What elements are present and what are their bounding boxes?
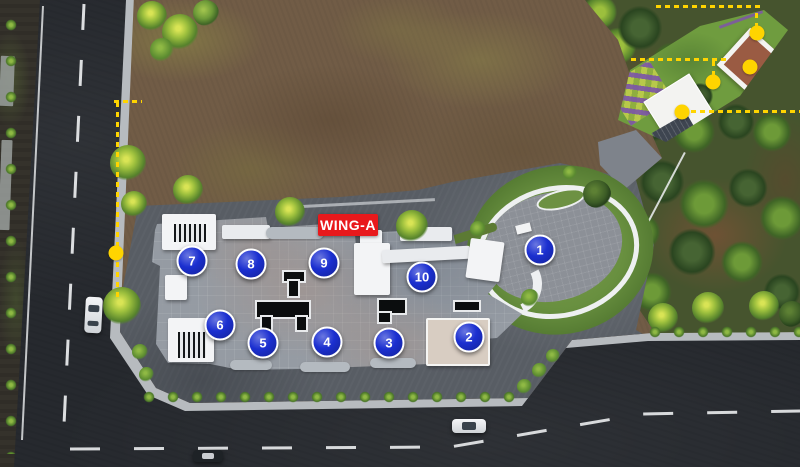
bush (150, 38, 174, 62)
car (452, 419, 486, 433)
plan-marker-2[interactable]: 2 (454, 322, 485, 353)
palm-tree (275, 197, 305, 227)
amenity-dot[interactable] (706, 75, 721, 90)
boundary-line (712, 58, 715, 76)
bush (132, 344, 148, 360)
roof-structure (165, 275, 187, 300)
boundary-line (114, 100, 142, 103)
bush (139, 367, 154, 382)
amenity-dot[interactable] (743, 60, 758, 75)
boundary-line (691, 110, 800, 113)
plan-marker-number: 4 (323, 335, 330, 350)
plan-marker-8[interactable]: 8 (236, 249, 267, 280)
plan-marker-number: 8 (247, 257, 254, 272)
car (193, 450, 223, 462)
plan-marker-4[interactable]: 4 (312, 327, 343, 358)
roof-slab (230, 360, 272, 370)
amenity-dot[interactable] (109, 246, 124, 261)
roof-slab (300, 362, 350, 372)
stair-core (289, 281, 298, 296)
plan-marker-9[interactable]: 9 (309, 248, 340, 279)
palm-tree (103, 287, 141, 325)
bush (546, 349, 560, 363)
plan-marker-number: 7 (188, 254, 195, 269)
bush (563, 166, 577, 180)
amenity-dot[interactable] (750, 26, 765, 41)
plan-marker-number: 1 (536, 243, 543, 258)
amenity-dot[interactable] (675, 105, 690, 120)
stair-core (297, 317, 306, 330)
plan-marker-number: 6 (216, 318, 223, 333)
plan-marker-number: 2 (465, 330, 472, 345)
tree (583, 180, 611, 208)
palm-tree (692, 292, 724, 324)
plan-marker-number: 5 (259, 336, 266, 351)
site-plan-image: WING-A 1 2 3 4 5 6 7 8 9 10 (0, 0, 800, 467)
vent-louver (176, 330, 208, 360)
plan-marker-5[interactable]: 5 (248, 328, 279, 359)
stair-core (284, 272, 304, 281)
roof-slab (370, 358, 416, 368)
bush (470, 221, 486, 237)
palm-tree (173, 175, 203, 205)
plan-marker-6[interactable]: 6 (205, 310, 236, 341)
palm-tree (121, 191, 147, 217)
plan-marker-number: 10 (415, 270, 429, 285)
stair-core (379, 300, 405, 313)
wing-a-label[interactable]: WING-A (318, 214, 378, 236)
plan-marker-7[interactable]: 7 (177, 246, 208, 277)
boundary-line (116, 101, 119, 297)
roof-slab (266, 227, 324, 239)
stair-core (257, 302, 309, 317)
bush-row (140, 389, 518, 405)
tree (193, 0, 219, 26)
plan-marker-number: 3 (385, 336, 392, 351)
stair-core (379, 313, 390, 322)
car (84, 297, 103, 334)
bush-row (646, 324, 800, 340)
stair-core (455, 302, 479, 310)
palm-tree (396, 210, 428, 242)
bush (521, 289, 539, 307)
bush (517, 379, 532, 394)
bush (532, 363, 547, 378)
plan-marker-1[interactable]: 1 (525, 235, 556, 266)
plan-marker-number: 9 (320, 256, 327, 271)
roof-structure (222, 225, 270, 239)
vent-louver (172, 222, 208, 244)
palm-tree (749, 291, 779, 321)
plan-marker-3[interactable]: 3 (374, 328, 405, 359)
plan-marker-10[interactable]: 10 (407, 262, 438, 293)
verge-bushes (0, 14, 30, 454)
boundary-line (656, 5, 764, 8)
